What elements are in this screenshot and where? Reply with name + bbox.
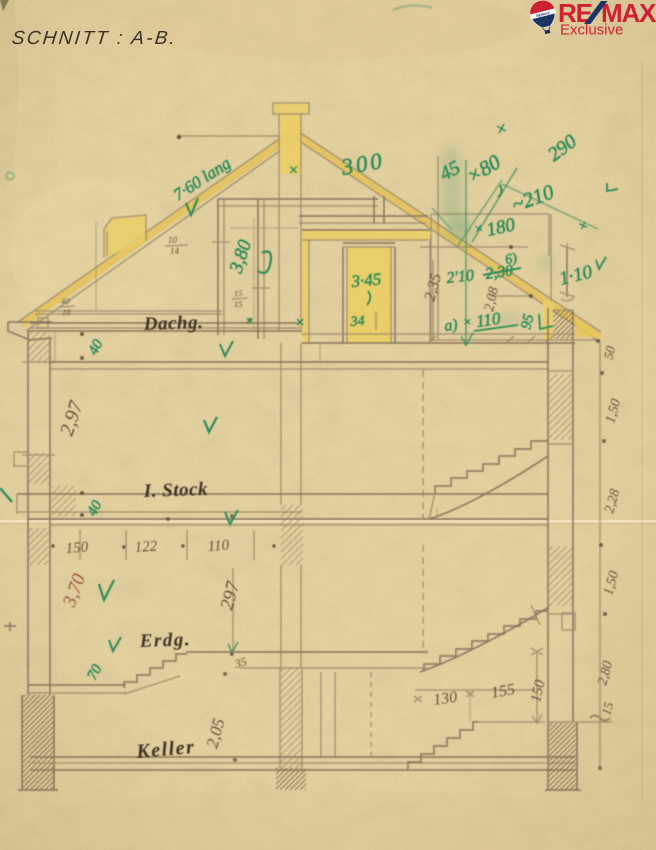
svg-text:Erdg.: Erdg. [138,629,191,652]
svg-text:2'10: 2'10 [446,267,475,287]
svg-text:34: 34 [349,314,365,330]
svg-text:×: × [463,314,472,329]
svg-text:150: 150 [65,539,89,557]
svg-text:×: × [245,313,254,328]
svg-text:10: 10 [168,235,178,245]
svg-text:a): a) [443,316,459,335]
svg-text:15: 15 [234,288,243,298]
svg-text:15: 15 [234,299,243,309]
svg-text:Dachg.: Dachg. [142,312,203,335]
svg-text:×: × [295,315,305,331]
svg-text:SCHNITT : A-B.: SCHNITT : A-B. [11,28,178,49]
svg-text:130: 130 [432,689,458,709]
svg-text:3·45: 3·45 [350,269,382,291]
svg-text:122: 122 [134,538,158,556]
svg-text:14: 14 [170,246,180,256]
svg-text:I. Stock: I. Stock [142,479,208,502]
svg-text:Exclusive: Exclusive [560,22,623,39]
svg-text:110: 110 [207,538,230,555]
svg-text:18: 18 [62,307,71,317]
svg-text:×: × [288,162,299,179]
svg-text:40: 40 [61,296,70,306]
